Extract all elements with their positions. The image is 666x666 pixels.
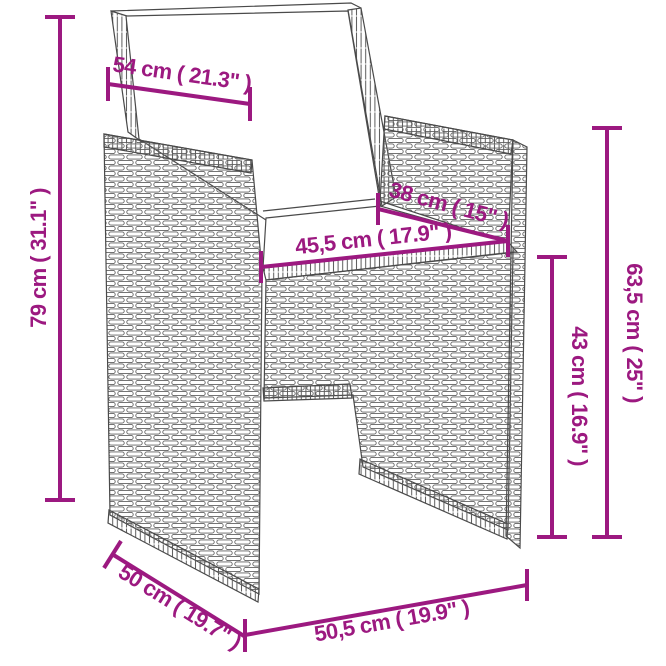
dim-armrest-height-label: 63,5 cm ( 25" ) <box>622 263 647 403</box>
chair-dimension-diagram: 54 cm ( 21.3" ) 79 cm ( 31.1" ) 38 cm ( … <box>0 0 666 666</box>
dim-total-height-label: 79 cm ( 31.1" ) <box>26 188 51 328</box>
dim-armrest-height-line <box>592 128 622 537</box>
dim-chair-width-label: 50,5 cm ( 19.9" ) <box>312 595 471 647</box>
backrest-frame-top-edge <box>111 3 361 11</box>
dim-seat-height-line <box>537 257 567 537</box>
dimension-diagram-page: 54 cm ( 21.3" ) 79 cm ( 31.1" ) 38 cm ( … <box>0 0 666 666</box>
dim-seat-height-label: 43 cm ( 16.9" ) <box>567 326 592 466</box>
